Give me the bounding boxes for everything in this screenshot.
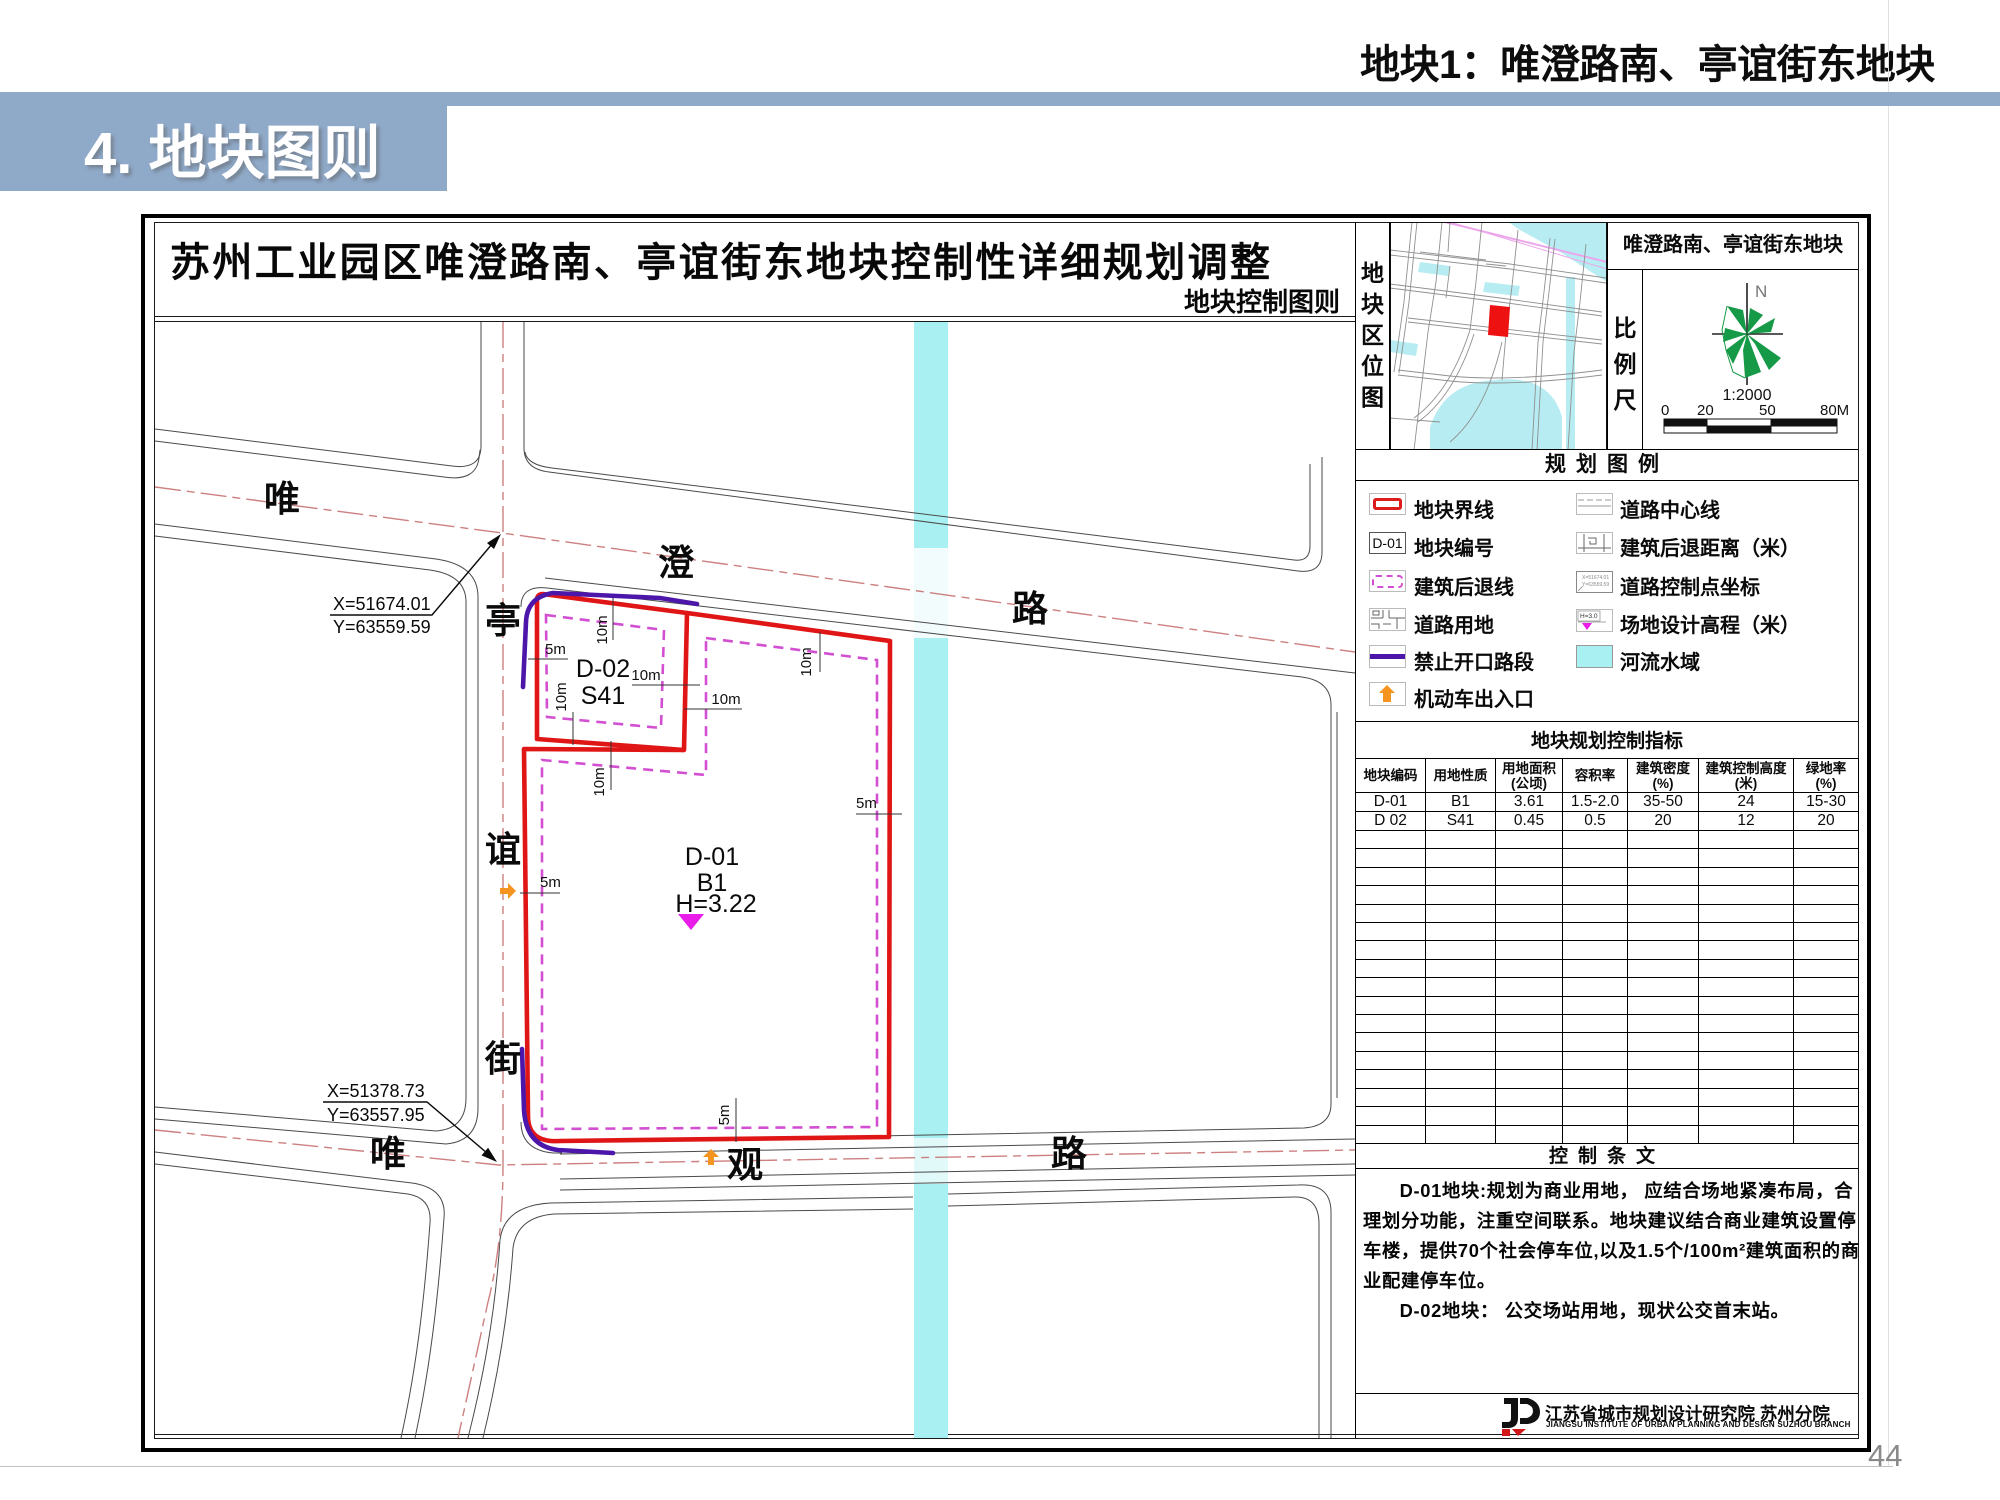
svg-text:X=51674.01: X=51674.01 <box>333 594 431 614</box>
svg-text:80M: 80M <box>1820 402 1849 419</box>
svg-text:5m: 5m <box>545 641 566 658</box>
svg-text:X=51378.73: X=51378.73 <box>327 1081 425 1101</box>
svg-text:唯: 唯 <box>264 478 300 519</box>
svg-text:路: 路 <box>1012 588 1049 629</box>
svg-text:街: 街 <box>484 1038 521 1079</box>
svg-text:H=3.0: H=3.0 <box>1580 613 1598 620</box>
svg-text:D-01: D-01 <box>685 843 739 871</box>
svg-text:D-02: D-02 <box>576 655 630 683</box>
svg-text:10m: 10m <box>711 691 740 708</box>
svg-text:0: 0 <box>1661 402 1669 419</box>
svg-text:谊: 谊 <box>485 829 521 870</box>
svg-text:5m: 5m <box>540 874 561 891</box>
svg-text:50: 50 <box>1759 402 1776 419</box>
svg-text:H=3.22: H=3.22 <box>675 890 756 918</box>
svg-text:唯: 唯 <box>370 1133 406 1174</box>
svg-text:N: N <box>1755 282 1767 301</box>
svg-text:Y=63559.59: Y=63559.59 <box>1582 582 1609 588</box>
svg-text:20: 20 <box>1697 402 1714 419</box>
svg-text:观: 观 <box>727 1144 763 1185</box>
svg-text:5m: 5m <box>716 1105 733 1126</box>
svg-text:澄: 澄 <box>658 542 695 583</box>
svg-text:10m: 10m <box>553 682 570 711</box>
svg-text:路: 路 <box>1051 1133 1088 1174</box>
svg-text:Y=63557.95: Y=63557.95 <box>327 1105 425 1125</box>
svg-text:10m: 10m <box>594 615 611 644</box>
svg-text:5m: 5m <box>856 795 877 812</box>
svg-text:X=51674.01: X=51674.01 <box>1582 575 1609 581</box>
svg-text:S41: S41 <box>581 682 625 710</box>
svg-text:10m: 10m <box>631 667 660 684</box>
svg-text:10m: 10m <box>591 767 608 796</box>
svg-text:亭: 亭 <box>485 600 521 641</box>
svg-text:10m: 10m <box>798 647 815 676</box>
svg-text:Y=63559.59: Y=63559.59 <box>333 617 431 637</box>
